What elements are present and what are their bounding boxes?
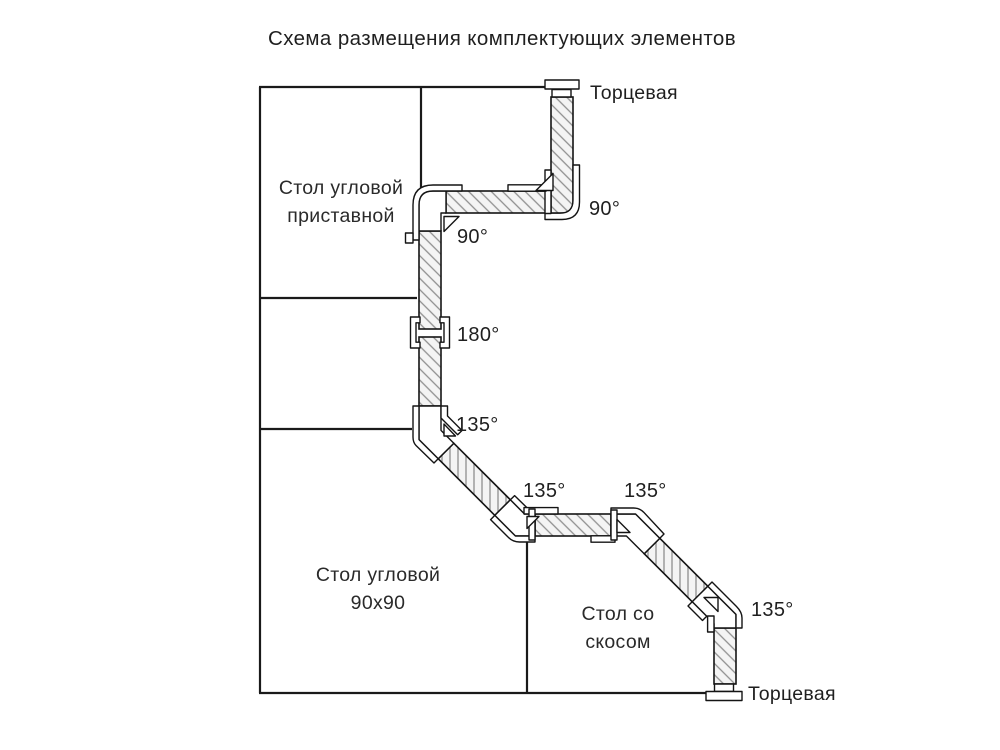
edge-profile-strip-bottom-vertical (714, 628, 736, 684)
connector-hook (406, 233, 414, 243)
angle-label-180: 180° (457, 324, 500, 346)
connector-bracket-left (411, 317, 421, 348)
end-cap-label-bottom: Торцевая (748, 683, 836, 705)
table-label-corner-90x90-line2: 90х90 (351, 592, 406, 614)
end-cap-bottom (706, 684, 742, 701)
end-cap-top (545, 80, 579, 97)
edge-profile-strip-vertical-a (419, 231, 441, 329)
connector-end-sleeve (708, 616, 714, 632)
table-label-beveled-line2: скосом (585, 631, 650, 653)
table-label-corner-90x90-line1: Стол угловой (316, 564, 440, 586)
angle-label-135-right: 135° (624, 480, 667, 502)
connector-end-sleeve (611, 510, 617, 540)
angle-label-90-inner: 90° (457, 226, 488, 248)
edge-profile-strip-lower-horizontal (535, 514, 611, 536)
angle-label-135-bottom: 135° (751, 599, 794, 621)
end-cap-label-top: Торцевая (590, 82, 678, 104)
table-label-corner-attached-line1: Стол угловой (279, 177, 403, 199)
end-cap-bottom-bar (706, 692, 742, 701)
edge-profile-strip-diagonal-b (644, 538, 708, 602)
angle-label-135-bend1: 135° (456, 414, 499, 436)
table-label-beveled-line1: Стол со (582, 603, 655, 625)
schematic-page: Схема размещения комплектующих элементов… (0, 0, 1000, 750)
end-cap-top-tab (552, 90, 571, 98)
edge-profile-strip-diagonal-a (438, 443, 510, 515)
angle-label-135-left: 135° (523, 480, 566, 502)
connector-bracket-right (440, 317, 450, 348)
angle-label-90-top-right: 90° (589, 198, 620, 220)
connector-body (419, 191, 446, 231)
end-cap-top-bar (545, 80, 579, 89)
diagram-title: Схема размещения комплектующих элементов (268, 27, 736, 50)
edge-profile-strip-vertical-b (419, 337, 441, 406)
edge-profile-strip-upper-horizontal (446, 191, 546, 213)
end-cap-bottom-tab (715, 684, 734, 692)
diagram-canvas: Схема размещения комплектующих элементов… (0, 0, 1000, 750)
edge-profile-strip-top-vertical (551, 97, 573, 213)
table-label-corner-attached-line2: приставной (287, 205, 394, 227)
